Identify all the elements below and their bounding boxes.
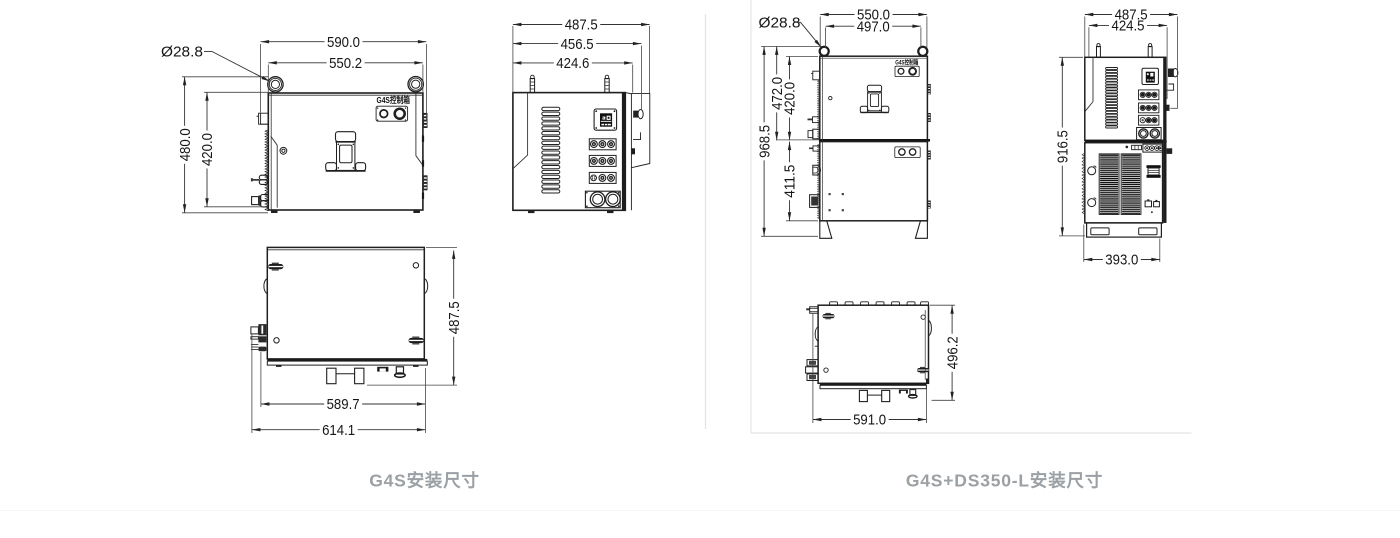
svg-text:916.5: 916.5 (1055, 130, 1072, 163)
svg-text:Ø28.8: Ø28.8 (161, 44, 203, 61)
svg-text:590.0: 590.0 (327, 34, 360, 51)
svg-text:G4S控制箱: G4S控制箱 (377, 95, 411, 105)
svg-text:G4S控制箱: G4S控制箱 (895, 58, 918, 66)
svg-text:591.0: 591.0 (853, 412, 886, 429)
svg-text:393.0: 393.0 (1105, 252, 1138, 269)
svg-text:456.5: 456.5 (561, 36, 594, 53)
svg-text:497.0: 497.0 (857, 18, 890, 35)
svg-text:550.2: 550.2 (329, 55, 362, 72)
svg-text:589.7: 589.7 (327, 396, 360, 413)
svg-text:420.0: 420.0 (199, 133, 216, 166)
svg-text:G4S安装尺寸: G4S安装尺寸 (369, 471, 480, 491)
svg-text:487.5: 487.5 (565, 17, 598, 34)
svg-text:968.5: 968.5 (756, 125, 773, 158)
svg-text:424.6: 424.6 (556, 55, 589, 72)
svg-text:420.0: 420.0 (782, 82, 799, 115)
svg-text:487.5: 487.5 (446, 301, 463, 334)
svg-text:411.5: 411.5 (782, 165, 799, 198)
svg-text:496.2: 496.2 (944, 336, 961, 369)
svg-text:614.1: 614.1 (322, 422, 355, 439)
svg-text:480.0: 480.0 (177, 128, 194, 161)
svg-text:Ø28.8: Ø28.8 (759, 14, 801, 31)
svg-text:G4S+DS350-L安装尺寸: G4S+DS350-L安装尺寸 (906, 471, 1103, 491)
svg-text:424.5: 424.5 (1112, 18, 1145, 35)
